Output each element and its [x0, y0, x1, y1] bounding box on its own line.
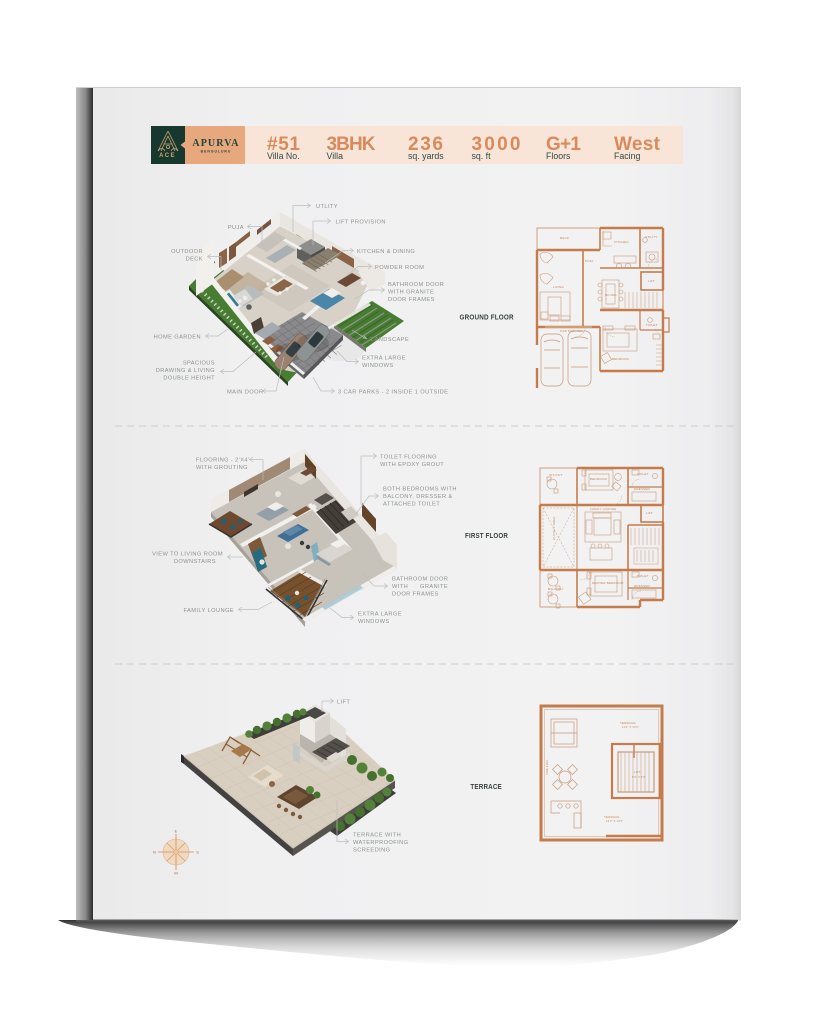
svg-text:S: S [196, 850, 199, 855]
svg-text:BALCONY, DRESSER &: BALCONY, DRESSER & [383, 494, 453, 500]
svg-text:TOILET: TOILET [637, 574, 649, 578]
svg-text:DECK: DECK [186, 257, 203, 263]
svg-text:13'3" X 14'0": 13'3" X 14'0" [606, 819, 623, 823]
svg-text:PUJA: PUJA [228, 225, 244, 231]
svg-text:PUJA: PUJA [585, 259, 593, 263]
svg-text:UTLITY: UTLITY [316, 204, 338, 210]
svg-text:TOILET: TOILET [646, 323, 658, 327]
svg-text:E: E [175, 829, 178, 834]
svg-text:LIFT: LIFT [648, 279, 655, 283]
svg-text:BENGULURU: BENGULURU [201, 150, 232, 154]
svg-text:MASTER BEDROOM: MASTER BEDROOM [592, 581, 624, 585]
svg-text:5'0" X 5'0": 5'0" X 5'0" [632, 775, 646, 779]
svg-text:WITH GRANITE: WITH GRANITE [392, 584, 448, 590]
svg-text:EXTRA LARGE: EXTRA LARGE [362, 356, 406, 362]
svg-text:SCREEDING: SCREEDING [353, 848, 390, 854]
svg-text:DECK: DECK [560, 236, 569, 240]
svg-text:WITH GROUTING: WITH GROUTING [196, 465, 248, 471]
svg-text:HOME GARDEN: HOME GARDEN [154, 335, 201, 341]
svg-text:BEDROOM: BEDROOM [590, 477, 607, 481]
svg-text:SIT-OUT: SIT-OUT [549, 473, 562, 477]
svg-text:DOOR FRAMES: DOOR FRAMES [388, 297, 435, 303]
svg-text:WINDOWS: WINDOWS [362, 363, 394, 369]
svg-text:FIRST FLOOR: FIRST FLOOR [465, 531, 508, 540]
svg-text:LIFT: LIFT [634, 770, 641, 774]
svg-text:ATTACHED TOILET: ATTACHED TOILET [383, 502, 440, 508]
svg-text:LIFT: LIFT [337, 700, 350, 706]
svg-text:N: N [153, 850, 156, 855]
svg-text:APURVA: APURVA [192, 138, 239, 149]
svg-text:LIFT PROVISION: LIFT PROVISION [336, 220, 386, 226]
svg-text:FAMILY LOUNGE: FAMILY LOUNGE [590, 507, 617, 511]
svg-text:TERRACE WITH: TERRACE WITH [353, 833, 401, 839]
svg-text:Floors: Floors [546, 151, 571, 161]
svg-text:POWDER ROOM: POWDER ROOM [375, 265, 424, 271]
svg-text:TOILET FLOORING: TOILET FLOORING [380, 455, 437, 461]
svg-text:SIDE ELEV.: SIDE ELEV. [545, 759, 549, 775]
svg-text:KITCHEN: KITCHEN [614, 240, 629, 244]
svg-text:Facing: Facing [614, 151, 641, 161]
svg-text:BATHROOM DOOR: BATHROOM DOOR [388, 282, 444, 288]
svg-text:CUTOUT AREA: CUTOUT AREA [552, 517, 556, 540]
svg-text:BATHROOM DOOR: BATHROOM DOOR [392, 577, 448, 583]
svg-text:OUTDOOR: OUTDOOR [171, 249, 203, 255]
svg-text:BEDROOM: BEDROOM [612, 357, 629, 361]
svg-text:11'0" X 14'0": 11'0" X 14'0" [622, 725, 639, 729]
svg-text:DINING: DINING [605, 293, 617, 297]
svg-text:TERRACE: TERRACE [470, 782, 502, 791]
svg-text:Villa: Villa [327, 151, 344, 161]
svg-text:DRAWING & LIVING: DRAWING & LIVING [156, 368, 215, 374]
svg-text:BALCONY: BALCONY [548, 587, 564, 591]
svg-text:BOTH BEDROOMS WITH: BOTH BEDROOMS WITH [383, 487, 457, 493]
svg-text:CAR PARKING: CAR PARKING [560, 329, 583, 333]
svg-text:TERRACE: TERRACE [620, 721, 636, 725]
svg-text:DRESSER: DRESSER [634, 584, 651, 588]
svg-text:GROUND FLOOR: GROUND FLOOR [460, 312, 515, 321]
svg-text:FLOORING - 2'X4': FLOORING - 2'X4' [196, 458, 249, 464]
svg-text:WITH GRANITE: WITH GRANITE [388, 290, 434, 296]
svg-text:WATERPROOFING: WATERPROOFING [353, 840, 408, 846]
svg-text:TOILET: TOILET [637, 472, 649, 476]
svg-text:KITCHEN & DINING: KITCHEN & DINING [357, 249, 415, 255]
svg-text:FAMILY LOUNGE: FAMILY LOUNGE [183, 608, 234, 614]
svg-text:Villa No.: Villa No. [267, 151, 300, 161]
svg-text:W: W [174, 871, 178, 876]
svg-text:SPACIOUS: SPACIOUS [183, 361, 215, 367]
svg-text:MAIN DOOR: MAIN DOOR [227, 390, 263, 396]
svg-text:WITH EPOXY GROUT: WITH EPOXY GROUT [380, 462, 444, 468]
svg-text:DOWNSTAIRS: DOWNSTAIRS [174, 559, 216, 565]
svg-text:3 CAR PARKS - 2 INSIDE 1 OUTSI: 3 CAR PARKS - 2 INSIDE 1 OUTSIDE [338, 390, 448, 396]
svg-text:EXTRA LARGE: EXTRA LARGE [358, 612, 402, 618]
svg-text:DRESSER: DRESSER [634, 487, 651, 491]
svg-text:LANDSCAPE: LANDSCAPE [371, 337, 409, 343]
svg-text:DOOR FRAMES: DOOR FRAMES [392, 592, 439, 598]
svg-text:LIVING: LIVING [553, 285, 565, 289]
svg-text:LIFT: LIFT [646, 511, 653, 515]
svg-text:WINDOWS: WINDOWS [358, 619, 390, 625]
svg-text:ACE: ACE [159, 153, 176, 159]
svg-text:TERRACE: TERRACE [604, 815, 620, 819]
svg-text:sq. ft: sq. ft [472, 151, 492, 161]
svg-text:VIEW TO LIVING ROOM: VIEW TO LIVING ROOM [152, 552, 223, 558]
svg-text:DOUBLE HEIGHT: DOUBLE HEIGHT [163, 376, 215, 382]
svg-text:sq. yards: sq. yards [408, 151, 444, 161]
svg-text:UTILITY: UTILITY [645, 235, 658, 239]
